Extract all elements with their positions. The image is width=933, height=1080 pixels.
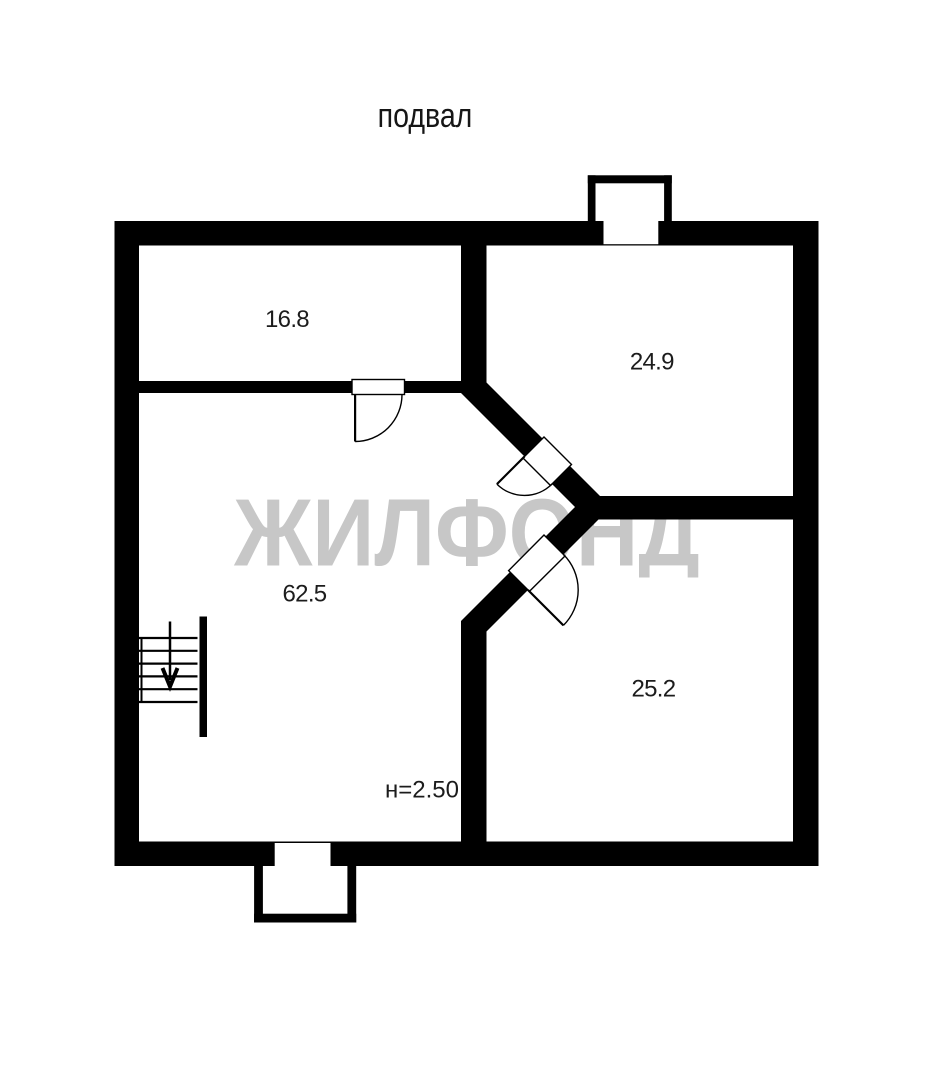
svg-text:подвал: подвал (378, 97, 473, 135)
svg-text:н=2.50: н=2.50 (385, 777, 459, 804)
svg-text:62.5: 62.5 (283, 580, 327, 607)
svg-text:24.9: 24.9 (630, 348, 674, 375)
svg-text:16.8: 16.8 (265, 306, 309, 333)
svg-text:25.2: 25.2 (631, 676, 675, 703)
svg-text:ЖИЛФОНД: ЖИЛФОНД (233, 479, 700, 586)
